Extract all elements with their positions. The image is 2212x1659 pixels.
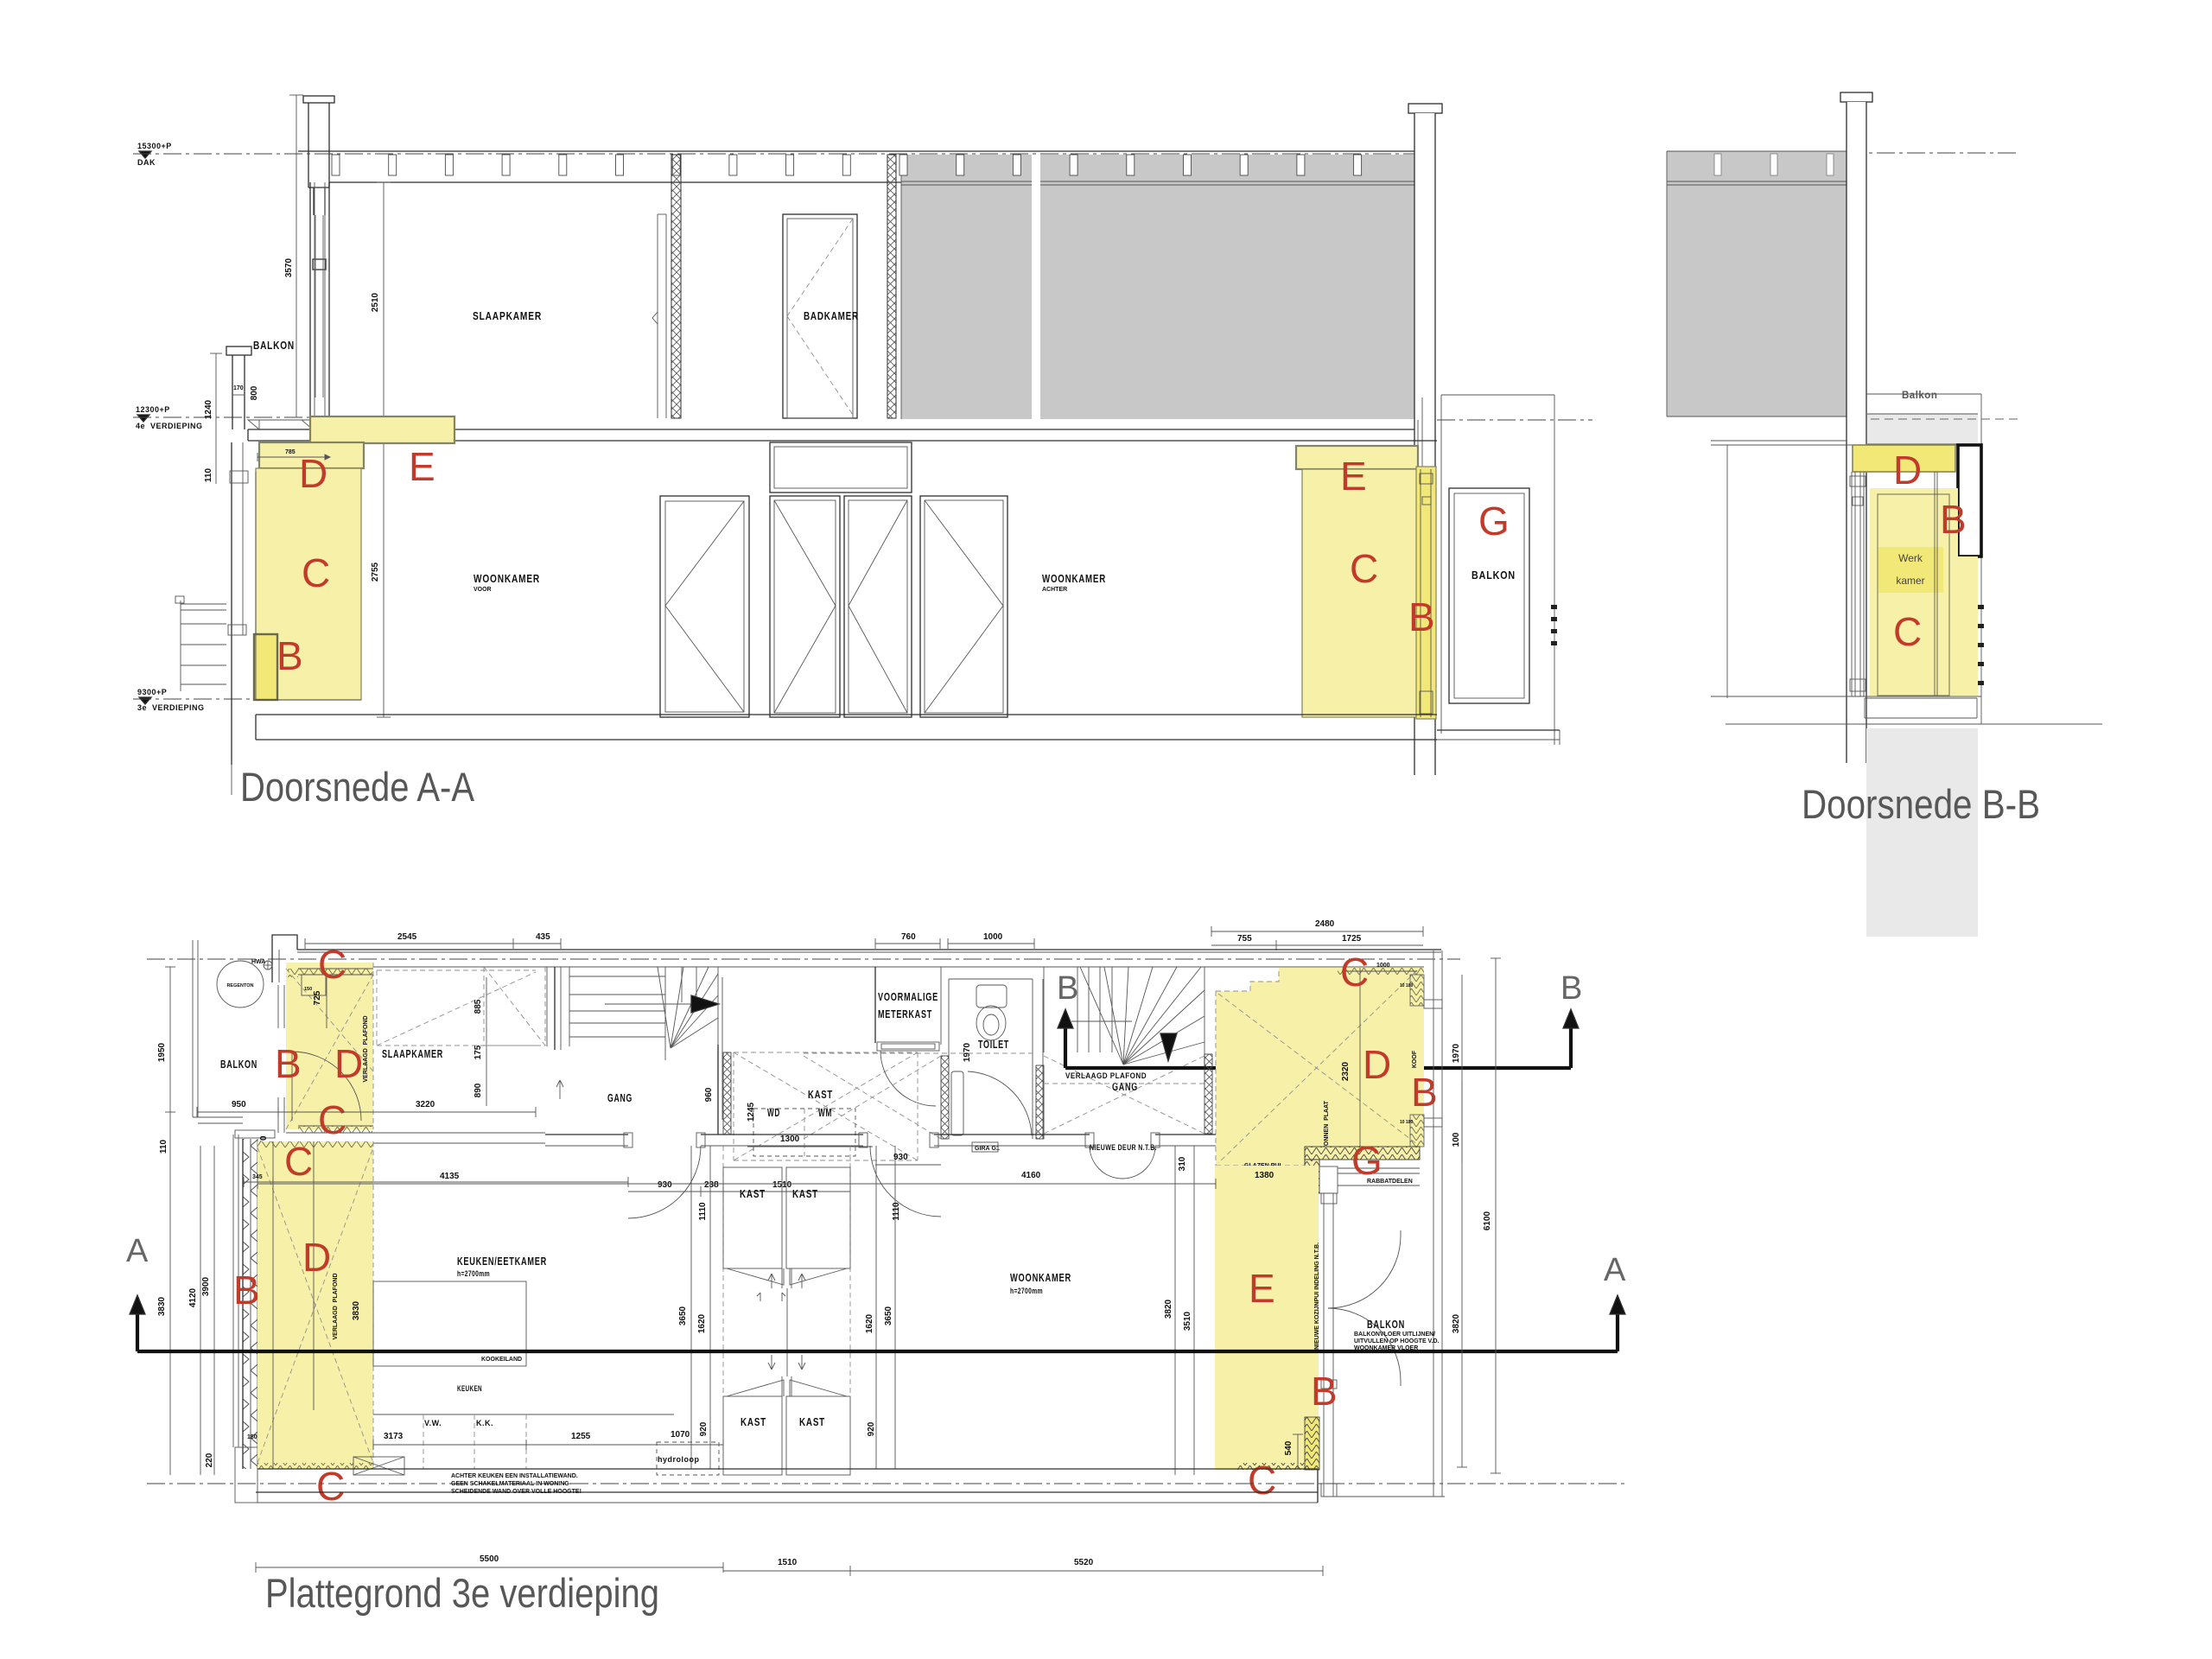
svg-text:4135: 4135: [440, 1172, 460, 1181]
svg-text:h=2700mm: h=2700mm: [1010, 1287, 1043, 1295]
svg-text:E: E: [409, 444, 435, 489]
svg-text:VOOR: VOOR: [474, 587, 492, 593]
svg-text:170: 170: [233, 385, 244, 391]
svg-text:10 180: 10 180: [1400, 983, 1414, 988]
svg-text:100: 100: [1452, 1132, 1461, 1147]
svg-text:785: 785: [285, 449, 296, 455]
svg-text:G: G: [1478, 499, 1510, 543]
svg-text:1000: 1000: [983, 932, 1003, 942]
svg-text:h=2700mm: h=2700mm: [457, 1269, 490, 1278]
svg-text:3900: 3900: [201, 1276, 211, 1296]
svg-text:REGENTON: REGENTON: [226, 983, 253, 988]
svg-text:175: 175: [474, 1045, 483, 1059]
svg-text:5500: 5500: [480, 1554, 499, 1564]
svg-text:1380: 1380: [1255, 1171, 1274, 1180]
svg-text:1255: 1255: [571, 1432, 591, 1441]
svg-text:1620: 1620: [697, 1313, 707, 1333]
svg-text:4e VERDIEPING: 4e VERDIEPING: [136, 422, 203, 430]
svg-text:9300+P: 9300+P: [137, 688, 167, 696]
svg-text:D: D: [334, 1041, 363, 1086]
svg-text:3820: 3820: [1164, 1299, 1173, 1319]
svg-text:V.W.: V.W.: [424, 1419, 442, 1427]
svg-text:B: B: [1940, 497, 1967, 542]
svg-text:ACHTER KEUKEN EEN INSTALLATIEW: ACHTER KEUKEN EEN INSTALLATIEWAND.: [451, 1473, 578, 1479]
svg-text:920: 920: [867, 1421, 876, 1436]
svg-text:760: 760: [901, 932, 916, 942]
svg-text:755: 755: [1237, 934, 1252, 944]
svg-text:2755: 2755: [371, 562, 380, 582]
svg-text:BALKON: BALKON: [1471, 569, 1516, 582]
svg-text:1725: 1725: [1342, 934, 1362, 944]
svg-text:310: 310: [1178, 1156, 1187, 1171]
svg-text:D: D: [302, 1235, 331, 1280]
svg-text:SLAAPKAMER: SLAAPKAMER: [473, 310, 542, 322]
svg-text:10 180: 10 180: [1400, 1120, 1414, 1125]
svg-text:KAST: KAST: [799, 1416, 825, 1428]
svg-text:3820: 3820: [1452, 1313, 1461, 1333]
svg-text:C: C: [302, 550, 330, 595]
svg-text:D: D: [299, 451, 327, 496]
svg-text:Doorsnede B-B: Doorsnede B-B: [1802, 781, 2040, 827]
svg-text:GIRA G1: GIRA G1: [975, 1146, 1000, 1152]
svg-text:540: 540: [1284, 1440, 1294, 1455]
svg-text:2320: 2320: [1341, 1061, 1351, 1081]
svg-text:1300: 1300: [780, 1135, 800, 1144]
svg-text:1110: 1110: [698, 1202, 708, 1221]
svg-text:KOOF: KOOF: [1412, 1050, 1418, 1068]
svg-text:C: C: [318, 1097, 346, 1142]
svg-text:SLAAPKAMER: SLAAPKAMER: [382, 1048, 443, 1060]
svg-text:KAST: KAST: [792, 1188, 818, 1200]
svg-text:1510: 1510: [778, 1558, 798, 1567]
svg-text:800: 800: [250, 385, 259, 400]
svg-text:2510: 2510: [371, 292, 380, 312]
svg-text:930: 930: [893, 1153, 908, 1162]
svg-text:ACHTER: ACHTER: [1042, 587, 1067, 593]
svg-text:E: E: [1340, 454, 1367, 499]
svg-text:E: E: [1249, 1266, 1275, 1311]
svg-text:NIEUWE DEUR N.T.B.: NIEUWE DEUR N.T.B.: [1090, 1143, 1157, 1152]
svg-text:3830: 3830: [157, 1296, 167, 1316]
svg-text:BALKONVLOER UITLIJNEN/: BALKONVLOER UITLIJNEN/: [1354, 1332, 1435, 1338]
svg-text:VERLAAGD PLAFOND: VERLAAGD PLAFOND: [363, 1016, 369, 1083]
svg-text:4160: 4160: [1021, 1171, 1041, 1180]
svg-text:C: C: [1893, 609, 1922, 654]
svg-text:Plattegrond 3e verdieping: Plattegrond 3e verdieping: [265, 1570, 659, 1616]
svg-text:238: 238: [704, 1180, 719, 1190]
svg-text:KAST: KAST: [808, 1089, 833, 1101]
svg-text:D: D: [1893, 448, 1922, 493]
svg-text:15300+P: 15300+P: [137, 142, 172, 150]
svg-text:3173: 3173: [384, 1432, 404, 1441]
svg-text:KEUKEN/EETKAMER: KEUKEN/EETKAMER: [457, 1255, 547, 1268]
svg-text:3510: 3510: [1183, 1311, 1192, 1331]
svg-text:A: A: [1604, 1252, 1626, 1288]
svg-text:hydroloop: hydroloop: [658, 1455, 700, 1464]
svg-text:BADKAMER: BADKAMER: [804, 310, 859, 322]
svg-text:1620: 1620: [865, 1313, 874, 1333]
svg-text:5520: 5520: [1074, 1558, 1094, 1567]
svg-text:890: 890: [474, 1083, 483, 1097]
svg-text:SCHEIDENDE WAND OVER VOLLE HOO: SCHEIDENDE WAND OVER VOLLE HOOGTE!: [451, 1489, 582, 1495]
svg-text:VERLAAGD PLAFOND: VERLAAGD PLAFOND: [1065, 1071, 1147, 1080]
svg-text:1970: 1970: [1452, 1043, 1461, 1063]
svg-text:B: B: [1408, 594, 1435, 639]
svg-text:220: 220: [205, 1452, 214, 1467]
svg-text:KEUKEN: KEUKEN: [457, 1384, 482, 1393]
svg-text:C: C: [284, 1139, 313, 1184]
svg-text:C: C: [1340, 950, 1369, 995]
svg-text:1070: 1070: [671, 1430, 690, 1440]
svg-text:725: 725: [313, 990, 322, 1005]
svg-text:Balkon: Balkon: [1902, 391, 1937, 401]
svg-text:GANG: GANG: [607, 1092, 632, 1104]
svg-text:K.K.: K.K.: [476, 1419, 493, 1427]
svg-text:3570: 3570: [284, 257, 294, 277]
svg-text:WOONKAMER: WOONKAMER: [1042, 573, 1106, 585]
svg-text:1970: 1970: [963, 1042, 972, 1062]
svg-text:3830: 3830: [352, 1300, 361, 1320]
svg-text:1245: 1245: [747, 1102, 756, 1122]
svg-text:BALKON: BALKON: [253, 340, 295, 352]
svg-text:B: B: [233, 1268, 260, 1313]
svg-text:GANG: GANG: [1112, 1081, 1138, 1093]
svg-text:WOONKAMER: WOONKAMER: [1010, 1272, 1071, 1284]
svg-text:110: 110: [159, 1139, 168, 1154]
svg-text:KAST: KAST: [741, 1416, 766, 1428]
svg-text:1950: 1950: [157, 1042, 167, 1062]
svg-text:DAK: DAK: [137, 158, 156, 167]
svg-text:12300+P: 12300+P: [136, 405, 170, 414]
svg-text:C: C: [1350, 546, 1378, 591]
svg-text:180: 180: [247, 1434, 257, 1440]
svg-text:kamer: kamer: [1896, 575, 1924, 587]
svg-text:110: 110: [204, 467, 213, 482]
svg-text:D: D: [1363, 1042, 1391, 1087]
svg-text:960: 960: [704, 1087, 714, 1102]
svg-text:C: C: [318, 942, 346, 987]
svg-text:TOILET: TOILET: [978, 1039, 1009, 1051]
svg-text:1240: 1240: [204, 399, 213, 419]
svg-text:METERKAST: METERKAST: [878, 1008, 932, 1020]
svg-text:B: B: [276, 633, 303, 678]
svg-text:3e VERDIEPING: 3e VERDIEPING: [137, 703, 205, 712]
svg-text:3220: 3220: [416, 1100, 435, 1109]
svg-text:4120: 4120: [188, 1287, 198, 1307]
svg-text:Doorsnede A-A: Doorsnede A-A: [240, 764, 475, 810]
svg-text:1110: 1110: [892, 1202, 901, 1221]
svg-text:NIEUWE KOZIJNPUI INDELING N.T.: NIEUWE KOZIJNPUI INDELING N.T.B.: [1314, 1243, 1320, 1350]
svg-text:3650: 3650: [678, 1306, 688, 1325]
svg-text:920: 920: [699, 1421, 709, 1436]
svg-text:C: C: [316, 1464, 345, 1509]
svg-text:6100: 6100: [1483, 1211, 1492, 1230]
svg-text:B: B: [1560, 970, 1582, 1007]
svg-text:KAST: KAST: [740, 1188, 766, 1200]
svg-text:2545: 2545: [397, 932, 417, 942]
svg-text:KOOKEILAND: KOOKEILAND: [481, 1357, 522, 1363]
svg-text:435: 435: [536, 932, 550, 942]
svg-text:885: 885: [474, 999, 483, 1014]
svg-text:WOONKAMER: WOONKAMER: [474, 573, 540, 585]
svg-text:VOORMALIGE: VOORMALIGE: [878, 991, 938, 1003]
svg-text:930: 930: [658, 1180, 672, 1190]
svg-text:Werk: Werk: [1898, 552, 1923, 564]
svg-text:VERLAAGD PLAFOND: VERLAAGD PLAFOND: [333, 1274, 339, 1340]
svg-text:1000: 1000: [1376, 963, 1390, 969]
svg-text:950: 950: [232, 1100, 246, 1109]
svg-text:B: B: [1057, 970, 1078, 1007]
svg-text:2480: 2480: [1315, 919, 1335, 929]
svg-text:C: C: [1248, 1458, 1276, 1503]
svg-text:BALKON: BALKON: [220, 1058, 257, 1071]
svg-text:150: 150: [304, 987, 312, 992]
svg-text:A: A: [126, 1233, 149, 1269]
svg-text:UITVULLEN OP HOOGTE V.D.: UITVULLEN OP HOOGTE V.D.: [1354, 1338, 1440, 1344]
svg-text:GEEN SCHAKELMATERIAAL IN WONIN: GEEN SCHAKELMATERIAAL IN WONING-: [451, 1481, 572, 1487]
svg-text:BALKON: BALKON: [1367, 1319, 1405, 1331]
svg-text:G: G: [1351, 1138, 1382, 1183]
svg-text:3650: 3650: [884, 1306, 893, 1325]
svg-text:B: B: [1311, 1369, 1338, 1414]
svg-text:B: B: [275, 1041, 302, 1086]
